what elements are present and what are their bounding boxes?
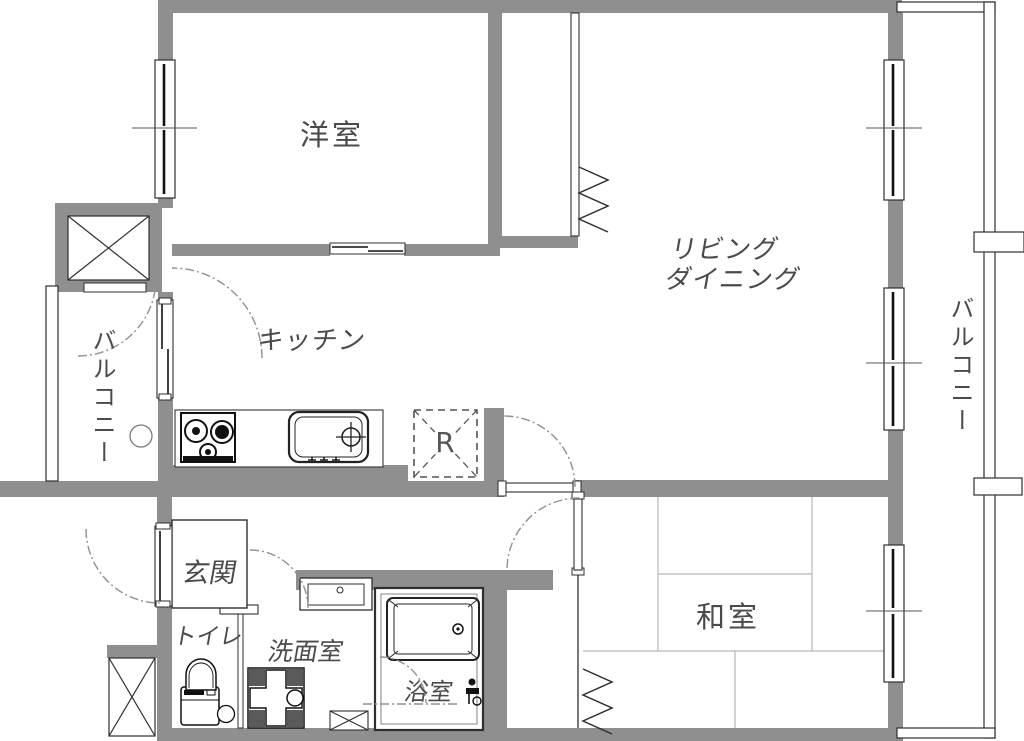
balcony-edge-top [897, 2, 995, 12]
wall-segment [888, 13, 903, 62]
kitchen-hall-door [498, 481, 581, 496]
closet-folding-doors [579, 167, 612, 734]
room-label-entrance: 玄関 [175, 551, 246, 590]
wall-segment [158, 0, 173, 62]
room-label-kitchen: キッチン [249, 320, 376, 357]
balcony-door [157, 298, 173, 400]
wall-segment [0, 481, 504, 497]
wall-segment [484, 408, 504, 481]
west-room-sliding-door [330, 243, 405, 254]
washing-machine-pan-icon [248, 668, 304, 728]
kitchen-door-arc [504, 416, 575, 487]
duct-x-box [330, 711, 368, 730]
elevator-shaft-x-box [55, 203, 162, 292]
wall-segment [500, 236, 578, 248]
pipe-shaft-x-box [109, 658, 155, 736]
wall-bottom [157, 728, 903, 741]
stove-icon [181, 413, 235, 463]
living-line-1: リビング [668, 235, 808, 265]
wall-segment [575, 480, 902, 497]
room-label-japanese: 和室 [662, 594, 794, 636]
refrigerator-label: R [430, 426, 460, 459]
wall-segment [172, 244, 330, 256]
sink-icon [289, 412, 368, 462]
window-living-2 [866, 288, 922, 430]
wall-top [158, 0, 902, 13]
balcony-door-arc-inner [172, 268, 262, 358]
kitchen-counter [175, 410, 383, 467]
living-line-2: ダイニング [663, 265, 803, 295]
balcony-railing [46, 286, 58, 481]
room-label-balcony-left: バルコニー [85, 328, 120, 478]
room-label-western: 洋室 [262, 112, 402, 154]
balcony-partition [974, 232, 1024, 252]
room-label-living-dining: リビング ダイニング [663, 235, 809, 295]
wall-segment [107, 645, 157, 658]
floor-plan: 洋室 リビング ダイニング キッチン 和室 玄関 トイレ 洗面室 浴室 バルコニ… [0, 0, 1024, 741]
toilet-icon [181, 659, 235, 725]
wall-segment [888, 678, 903, 730]
room-label-washroom: 洗面室 [255, 632, 357, 668]
balcony-partition [974, 478, 1022, 495]
wall-segment [888, 198, 903, 290]
japanese-room-door [572, 492, 584, 575]
room-label-toilet: トイレ [171, 617, 243, 651]
vanity-sink-icon [300, 578, 372, 610]
front-door-arc [86, 529, 160, 603]
floor-plan-drawing [0, 0, 1024, 741]
room-label-bathroom: 浴室 [393, 672, 465, 707]
room-label-balcony-right: バルコニー [943, 296, 978, 446]
wall-segment [404, 244, 500, 256]
bathroom-unit [375, 588, 483, 730]
bathtub-icon [387, 598, 479, 660]
wall-segment [483, 588, 507, 730]
toilet-paper-holder [218, 706, 235, 723]
front-door [155, 523, 172, 607]
wall-segment [488, 13, 502, 244]
window-west-room [132, 60, 197, 198]
balcony-edge-bottom [897, 728, 995, 738]
balcony-edge-right [984, 2, 995, 738]
japanese-room-door-arc [507, 498, 579, 570]
closet-partition [571, 13, 579, 236]
window-living-1 [866, 60, 922, 200]
drain-circle-icon [130, 425, 152, 447]
window-japanese-room [866, 545, 922, 682]
living-closet-zigzag [579, 167, 608, 232]
japanese-room-closet-zigzag [583, 669, 612, 734]
wall-segment [157, 603, 172, 741]
